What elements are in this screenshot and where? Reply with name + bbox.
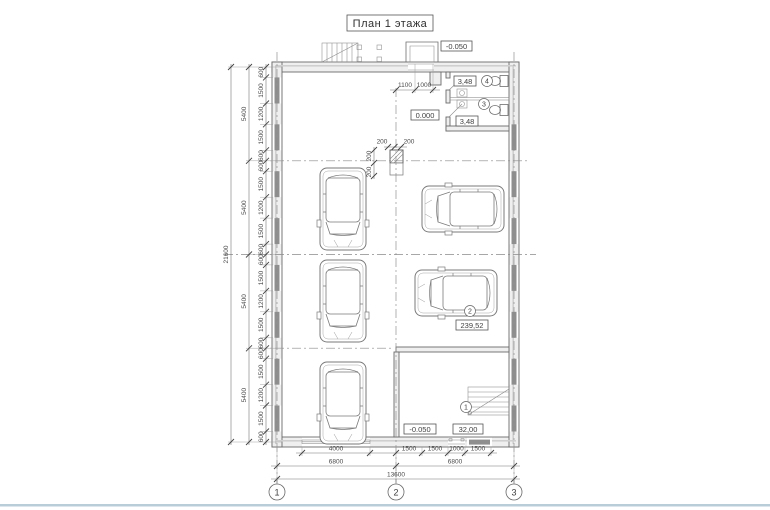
car-symbol (422, 183, 504, 235)
dim-label: 600 (258, 160, 265, 171)
entrance-porch (357, 42, 438, 62)
dim-label: 1000 (449, 446, 464, 453)
dim-label: 1500 (402, 446, 417, 453)
dim-label: 5400 (241, 387, 248, 402)
viewer-bottom-edge (0, 504, 770, 507)
elevation-label-porch: -0.050 (446, 42, 467, 51)
axis-bubble-2: 2 (393, 488, 398, 498)
axis-bubbles: 1 2 3 (269, 479, 522, 500)
dim-label: 1500 (258, 364, 265, 379)
column (390, 150, 403, 175)
dim-label-total-height: 21600 (223, 245, 230, 263)
dim-label: 600 (258, 150, 265, 161)
dim-label-total-width: 13600 (387, 472, 405, 479)
axis-bubble-3: 3 (511, 488, 516, 498)
dim-label: 200 (366, 150, 373, 161)
dim-label: 1500 (258, 83, 265, 98)
elevation-label-entry: 0.000 (416, 111, 435, 120)
dim-label: 4000 (329, 446, 344, 453)
sink-icon (457, 89, 467, 97)
dim-label: 600 (258, 243, 265, 254)
dim-label: 5400 (241, 294, 248, 309)
room2-area: 239,52 (461, 321, 484, 330)
car-symbol (317, 260, 369, 342)
dim-label: 1100 (398, 82, 412, 89)
dim-label: 6800 (448, 459, 463, 466)
dim-label: 1000 (417, 82, 432, 89)
dim-label: 600 (258, 66, 265, 77)
axis-bubble-1: 1 (274, 488, 279, 498)
dim-label: 1500 (258, 223, 265, 238)
dim-label: 6800 (329, 459, 344, 466)
room1-area: 32,00 (459, 425, 478, 434)
dim-label: 1500 (258, 130, 265, 145)
dim-label: 600 (258, 431, 265, 442)
dim-label: 200 (404, 139, 415, 146)
floor-plan-drawing: 600 1500 1200 1500 600 600 1500 1200 150… (0, 0, 770, 510)
dimensions-bottom: 4000 1500 1500 1000 1500 6800 6800 13600 (271, 446, 520, 483)
dim-label: 1500 (471, 446, 486, 453)
dim-label: 1500 (258, 317, 265, 332)
toilet-icon (490, 105, 509, 116)
page-title: План 1 этажа (353, 18, 428, 30)
car-symbol (317, 168, 369, 250)
dim-label: 5400 (241, 106, 248, 121)
exterior-stair (322, 43, 358, 62)
room4-area: 3,48 (458, 77, 473, 86)
car-symbol (415, 267, 497, 319)
elevation-label-room1: -0.050 (409, 425, 430, 434)
dim-label: 200 (377, 139, 388, 146)
room4-number: 4 (485, 79, 489, 86)
car-symbol (317, 362, 369, 444)
drawing-title: План 1 этажа (347, 15, 433, 31)
dim-label: 1500 (258, 411, 265, 426)
room3-area: 3,48 (460, 117, 475, 126)
dim-label: 1500 (258, 177, 265, 192)
room1-number: 1 (464, 405, 468, 412)
dim-label: 1500 (258, 270, 265, 285)
dim-label: 5400 (241, 200, 248, 215)
parked-cars (317, 168, 504, 444)
dim-label: 1200 (258, 200, 265, 215)
dim-label: 600 (258, 348, 265, 359)
interior-stair (468, 387, 509, 415)
dim-label: 200 (366, 166, 373, 177)
dim-label: 600 (258, 337, 265, 348)
dim-label: 1200 (258, 106, 265, 121)
room2-number: 2 (468, 309, 472, 316)
dim-label: 1500 (428, 446, 443, 453)
dim-label: 1200 (258, 294, 265, 309)
dim-label: 600 (258, 254, 265, 265)
axis-centerlines (224, 52, 536, 483)
dim-label: 1200 (258, 388, 265, 403)
room3-number: 3 (482, 102, 486, 109)
